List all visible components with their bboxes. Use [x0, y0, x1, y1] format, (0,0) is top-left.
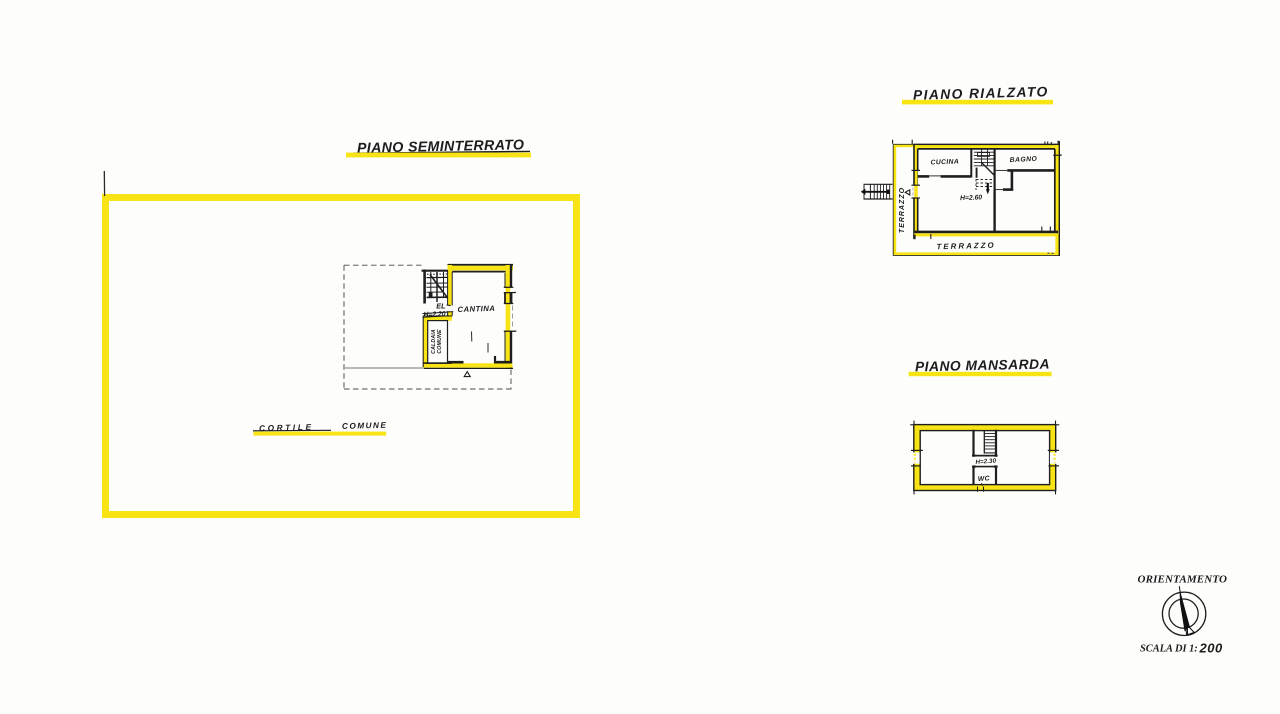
- svg-text:H=2.30: H=2.30: [975, 458, 997, 466]
- svg-text:CUCINA: CUCINA: [930, 158, 959, 166]
- svg-text:200: 200: [1199, 641, 1223, 656]
- svg-text:ORIENTAMENTO: ORIENTAMENTO: [1138, 574, 1228, 586]
- svg-text:WC: WC: [978, 475, 990, 483]
- svg-text:CORTILE: CORTILE: [259, 423, 314, 433]
- svg-text:CANTINA: CANTINA: [457, 304, 495, 314]
- svg-text:TERRAZZO: TERRAZZO: [899, 187, 906, 233]
- svg-text:SCALA DI 1:: SCALA DI 1:: [1140, 644, 1198, 655]
- svg-text:CALDAIA: CALDAIA: [431, 329, 437, 354]
- svg-text:TERRAZZO: TERRAZZO: [936, 241, 995, 252]
- svg-text:BAGNO: BAGNO: [1009, 156, 1037, 164]
- svg-text:H=2.60: H=2.60: [960, 194, 983, 202]
- svg-text:COMUNE: COMUNE: [437, 329, 443, 354]
- svg-text:COMUNE: COMUNE: [342, 421, 388, 431]
- svg-text:EL: EL: [436, 302, 445, 311]
- svg-text:PIANO MANSARDA: PIANO MANSARDA: [915, 357, 1050, 375]
